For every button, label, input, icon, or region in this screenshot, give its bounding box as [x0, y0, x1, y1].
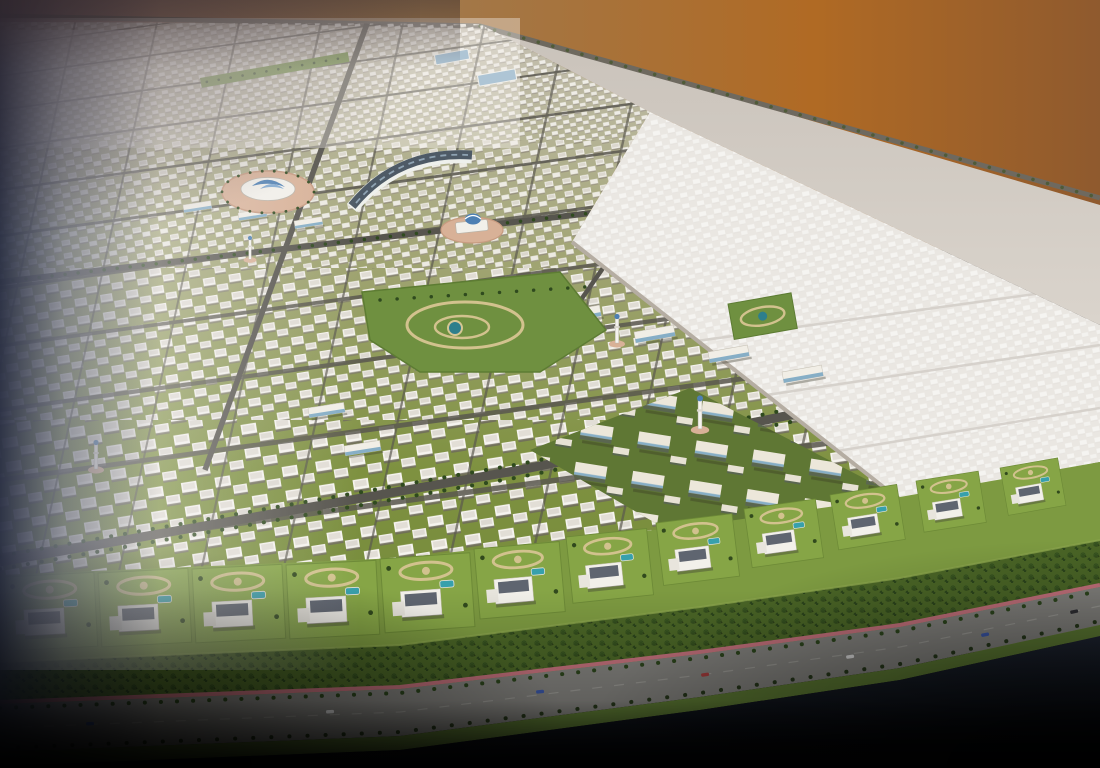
masterplan-render: [0, 0, 1100, 768]
vignette-bottom-right: [600, 540, 1100, 768]
vignette-top-left: [0, 0, 420, 240]
park-pond: [448, 321, 462, 335]
vignette-bottom-left: [0, 540, 560, 768]
masterplan-scene: [0, 0, 1100, 768]
